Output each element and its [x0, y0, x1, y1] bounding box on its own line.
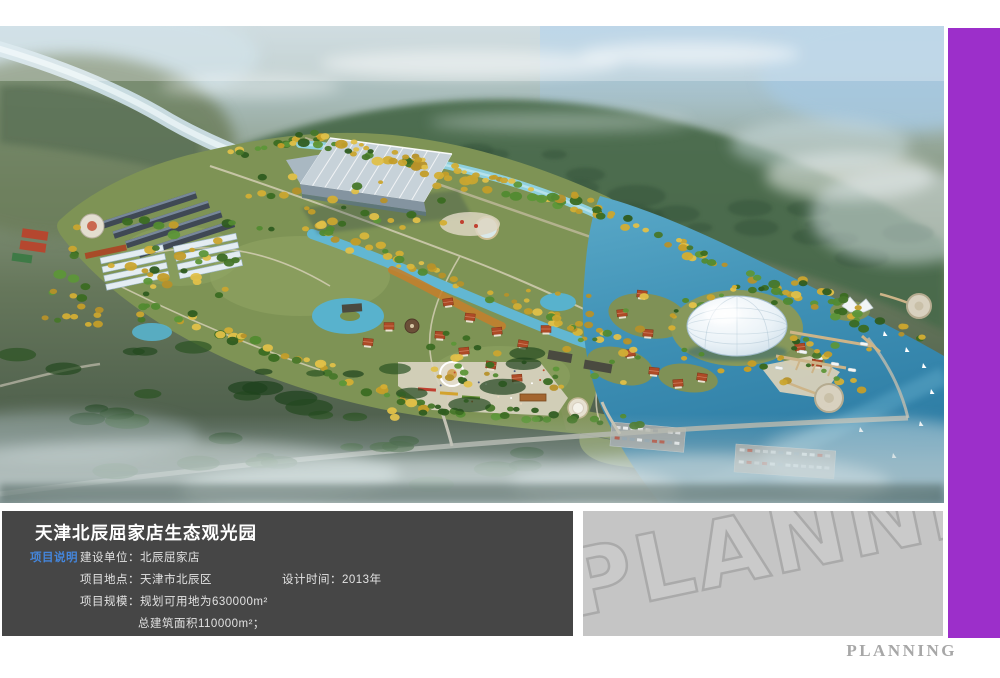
location-row: 项目地点：天津市北辰区 — [80, 571, 212, 587]
project-title: 天津北辰屈家店生态观光园 — [35, 520, 257, 545]
aerial-render-svg — [0, 26, 944, 503]
scale-row: 项目规模：规划可用地为630000m² — [80, 593, 268, 609]
fog — [0, 410, 944, 503]
design-time-row: 设计时间：2013年 — [282, 571, 382, 587]
section-label: 项目说明 — [30, 549, 78, 565]
footer-logo: PLANNING — [846, 641, 957, 661]
location-value: 天津市北辰区 — [140, 574, 212, 586]
aerial-render — [0, 26, 944, 503]
project-info-panel: 天津北辰屈家店生态观光园 项目说明 建设单位：北辰屈家店 项目地点：天津市北辰区… — [2, 511, 573, 636]
watermark-text: PLANNING — [583, 511, 943, 636]
top-haze — [0, 26, 944, 81]
watermark-panel: PLANNING — [583, 511, 943, 636]
area-row: 总建筑面积110000m²； — [138, 615, 265, 631]
time-value: 2013年 — [342, 574, 382, 586]
unit-label: 建设单位： — [80, 552, 140, 564]
unit-row: 建设单位：北辰屈家店 — [80, 549, 200, 565]
unit-value: 北辰屈家店 — [140, 552, 200, 564]
scale-label: 项目规模： — [80, 596, 140, 608]
left-circle-plaza — [80, 214, 104, 238]
location-label: 项目地点： — [80, 574, 140, 586]
presentation-board: 天津北辰屈家店生态观光园 项目说明 建设单位：北辰屈家店 项目地点：天津市北辰区… — [0, 0, 1000, 678]
time-label: 设计时间： — [282, 574, 342, 586]
scale-value: 规划可用地为630000m² — [140, 596, 268, 608]
accent-stripe — [948, 28, 1000, 638]
glass-dome — [687, 296, 787, 361]
